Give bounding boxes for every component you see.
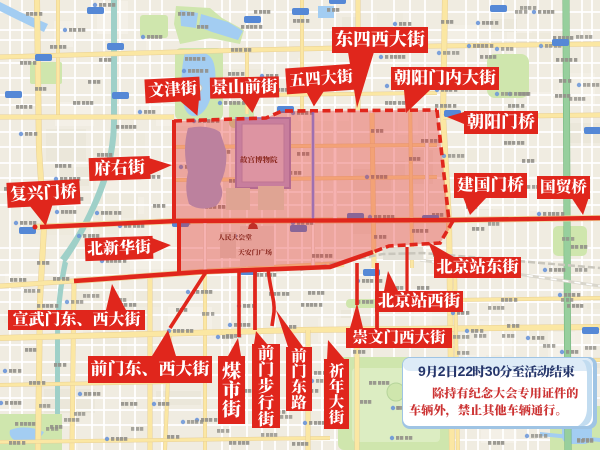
svg-text:9: 9 [418,363,426,379]
svg-text:30: 30 [485,363,501,379]
svg-text:22: 22 [458,363,474,379]
svg-text:2: 2 [438,363,446,379]
